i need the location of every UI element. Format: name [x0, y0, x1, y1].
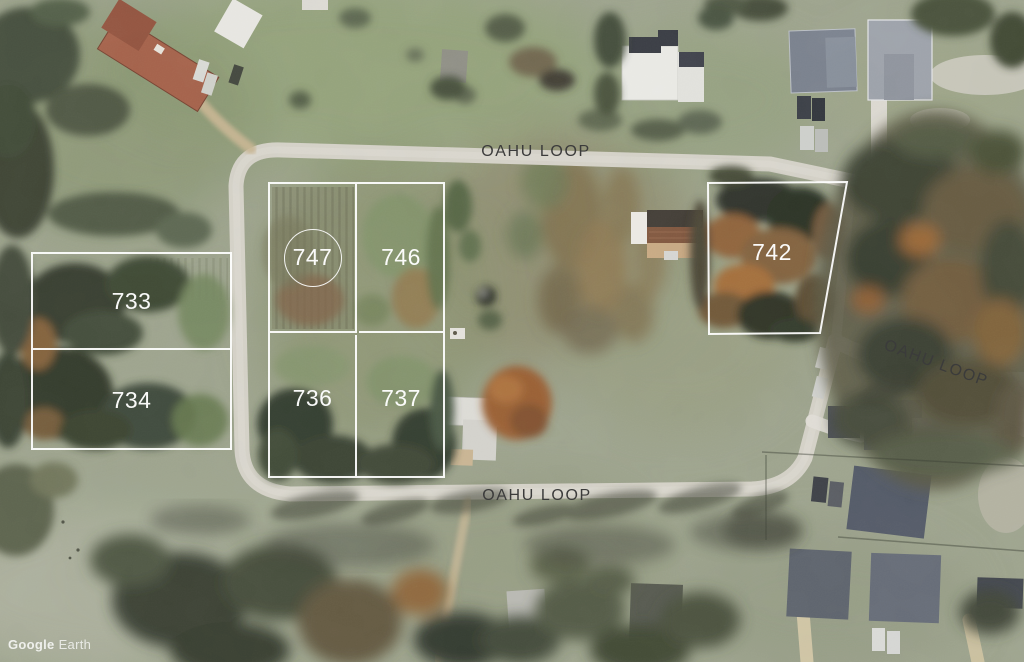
watermark-product: Earth: [59, 637, 92, 652]
lot-742: 742: [740, 238, 804, 266]
lot-736-label: 736: [293, 385, 333, 412]
lot-733-label: 733: [112, 288, 152, 315]
lot-737-label: 737: [381, 385, 421, 412]
lot-747-label: 747: [293, 244, 333, 271]
road-label-oahu-loop-south: OAHU LOOP: [482, 487, 592, 505]
road-label-oahu-loop-top: OAHU LOOP: [481, 143, 591, 161]
google-earth-watermark: GoogleEarth: [8, 637, 91, 652]
watermark-brand: Google: [8, 637, 55, 652]
lot-block-middle: 747 746 736 737: [268, 182, 445, 478]
lot-737: 737: [359, 335, 443, 476]
lot-block-west: 733 734: [31, 252, 232, 450]
lot-736: 736: [270, 335, 357, 476]
lot-746: 746: [359, 184, 443, 333]
aerial-lot-map: 733 734 747 746 736 737 742 OAHU LOOP OA…: [0, 0, 1024, 662]
lot-747: 747: [270, 184, 357, 333]
lot-734-label: 734: [112, 387, 152, 414]
lot-746-label: 746: [381, 244, 421, 271]
lot-734: 734: [33, 352, 230, 448]
lot-733: 733: [33, 254, 230, 350]
lot-742-label: 742: [752, 239, 792, 266]
